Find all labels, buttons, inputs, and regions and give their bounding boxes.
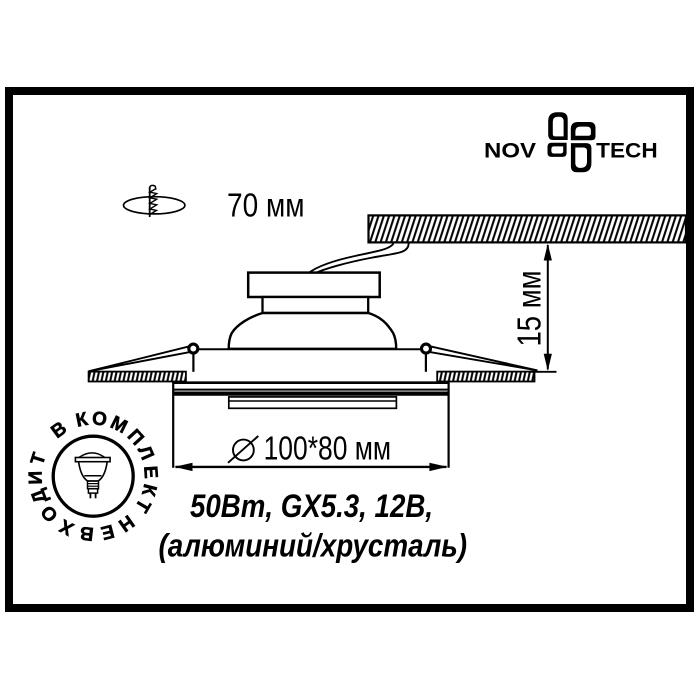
svg-text:В: В: [79, 522, 95, 544]
svg-text:15 мм: 15 мм: [511, 271, 548, 347]
svg-text:NOV: NOV: [484, 140, 536, 163]
svg-text:И: И: [26, 471, 47, 485]
svg-text:70 мм: 70 мм: [227, 187, 305, 224]
svg-text:О: О: [91, 408, 108, 430]
svg-text:TECH: TECH: [596, 140, 658, 163]
svg-text:Е: Е: [139, 465, 161, 479]
svg-text:50Вm, GX5.3, 12В,: 50Вm, GX5.3, 12В,: [190, 488, 433, 524]
svg-text:100*80 мм: 100*80 мм: [264, 429, 392, 466]
svg-text:(алюминий/хрусталь): (алюминий/хрусталь): [159, 528, 468, 564]
